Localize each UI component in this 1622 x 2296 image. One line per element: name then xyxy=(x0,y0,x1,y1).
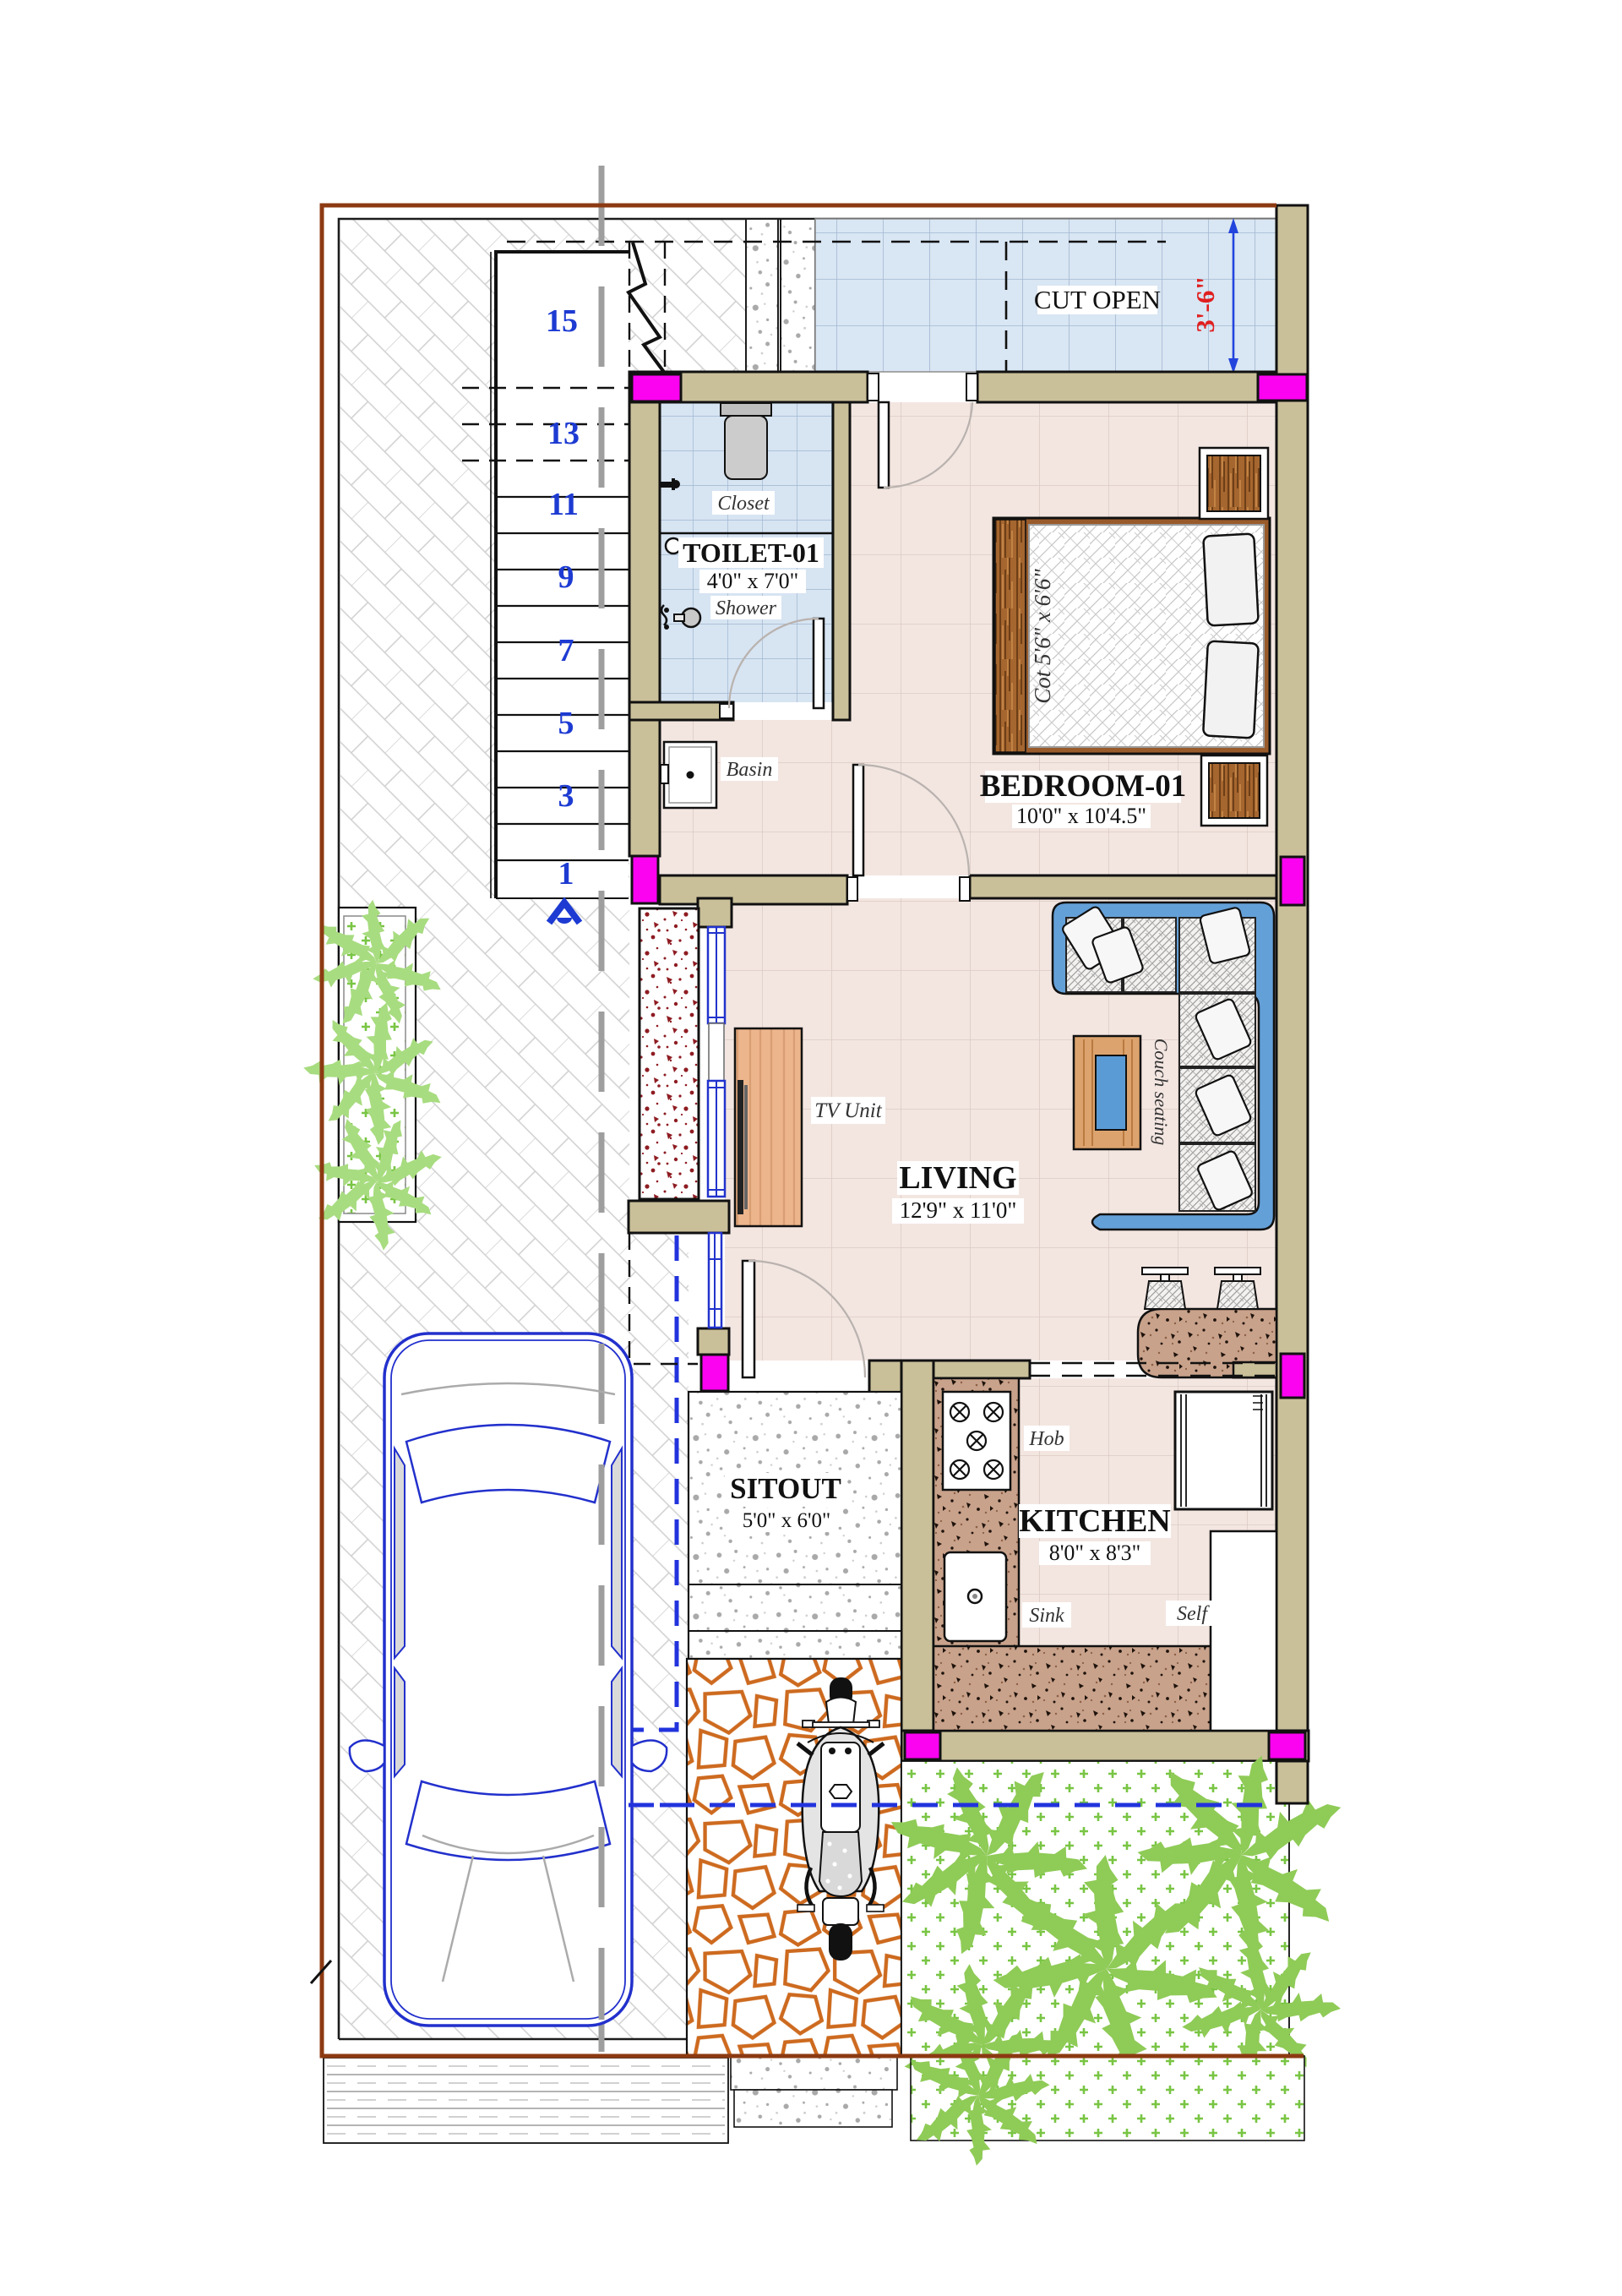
svg-text:9: 9 xyxy=(558,559,574,595)
svg-text:3: 3 xyxy=(558,778,574,814)
svg-text:3'-6": 3'-6" xyxy=(1190,275,1220,332)
svg-text:BEDROOM-01: BEDROOM-01 xyxy=(980,769,1187,804)
svg-text:7: 7 xyxy=(558,633,574,668)
svg-text:1: 1 xyxy=(558,856,574,892)
svg-text:LIVING: LIVING xyxy=(899,1160,1016,1196)
svg-text:Closet: Closet xyxy=(717,493,770,515)
svg-text:Couch seating: Couch seating xyxy=(1151,1039,1172,1146)
svg-text:Sink: Sink xyxy=(1029,1605,1064,1627)
svg-text:Self: Self xyxy=(1177,1603,1210,1625)
svg-text:Cot 5'6" x 6'6": Cot 5'6" x 6'6" xyxy=(1030,569,1055,704)
svg-text:5: 5 xyxy=(558,706,574,741)
svg-text:CUT OPEN: CUT OPEN xyxy=(1034,285,1161,314)
svg-text:8'0" x 8'3": 8'0" x 8'3" xyxy=(1049,1541,1141,1565)
svg-text:Basin: Basin xyxy=(727,759,773,781)
svg-text:TV Unit: TV Unit xyxy=(814,1099,882,1122)
svg-text:12'9" x 11'0": 12'9" x 11'0" xyxy=(900,1197,1017,1223)
svg-text:KITCHEN: KITCHEN xyxy=(1019,1503,1170,1539)
svg-text:11: 11 xyxy=(548,487,579,522)
svg-text:13: 13 xyxy=(547,416,580,451)
svg-text:10'0" x 10'4.5": 10'0" x 10'4.5" xyxy=(1016,804,1146,828)
svg-text:4'0" x 7'0": 4'0" x 7'0" xyxy=(707,569,799,593)
svg-text:Shower: Shower xyxy=(716,597,777,619)
svg-text:15: 15 xyxy=(546,303,578,339)
svg-text:SITOUT: SITOUT xyxy=(730,1472,841,1505)
svg-text:Hob: Hob xyxy=(1028,1428,1064,1450)
svg-text:5'0" x 6'0": 5'0" x 6'0" xyxy=(743,1509,830,1532)
svg-text:TOILET-01: TOILET-01 xyxy=(683,537,819,568)
